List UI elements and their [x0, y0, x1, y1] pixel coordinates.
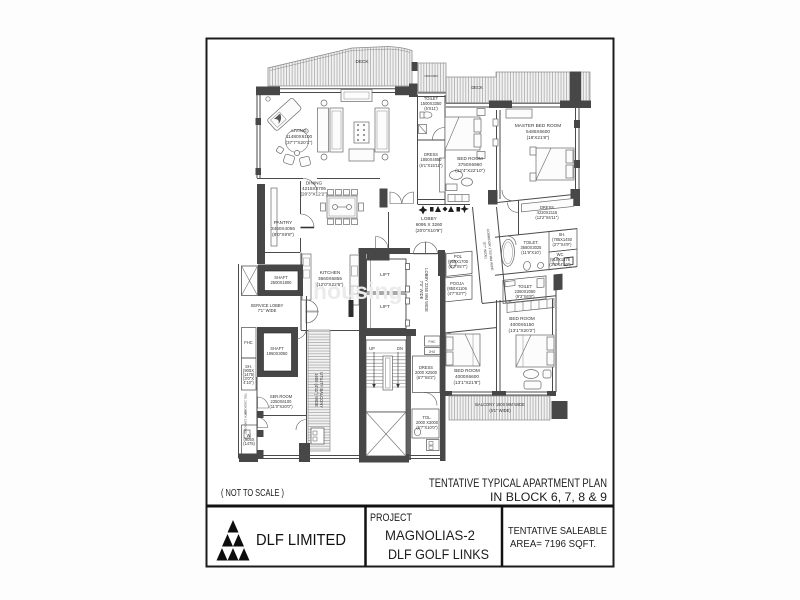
svg-text:(20'0"X10'9"): (20'0"X10'9")	[415, 228, 442, 233]
svg-text:7'0" WIDE: 7'0" WIDE	[419, 281, 424, 300]
svg-text:DLF LIMITED: DLF LIMITED	[256, 532, 346, 549]
svg-text:BED ROOM: BED ROOM	[457, 156, 483, 161]
svg-text:(3'0"X4'10"): (3'0"X4'10")	[549, 262, 571, 267]
svg-text:7'1" WIDE: 7'1" WIDE	[258, 308, 277, 313]
svg-text:11480X6100: 11480X6100	[286, 134, 313, 139]
svg-text:2500X1800: 2500X1800	[271, 280, 293, 285]
svg-text:LOBBY: LOBBY	[421, 216, 438, 221]
svg-text:4000X6600: 4000X6600	[455, 374, 479, 379]
svg-text:DN: DN	[397, 346, 403, 351]
svg-text:( NOT TO SCALE ): ( NOT TO SCALE )	[221, 487, 284, 499]
svg-text:(12'4"X22'10"): (12'4"X22'10")	[455, 168, 485, 173]
svg-text:(11'0"X20'0"): (11'0"X20'0")	[269, 404, 293, 409]
svg-text:(9'3"X6'9"): (9'3"X6'9")	[515, 294, 535, 299]
svg-text:(20'3"X12'2"): (20'3"X12'2")	[300, 192, 327, 197]
svg-text:FHC: FHC	[429, 340, 437, 344]
svg-text:BED ROOM: BED ROOM	[454, 368, 480, 373]
svg-text:FHC: FHC	[244, 340, 252, 345]
svg-text:MAGNOLIAS-2: MAGNOLIAS-2	[385, 527, 475, 543]
svg-text:4000X6150: 4000X6150	[510, 322, 534, 327]
svg-text:UP: UP	[369, 346, 375, 351]
svg-text:1500X900: 1500X900	[424, 74, 438, 78]
svg-text:(6'7"X8'2"): (6'7"X8'2")	[416, 375, 436, 380]
svg-text:DECK: DECK	[471, 85, 483, 90]
svg-text:(6'1"X15'11"): (6'1"X15'11")	[419, 163, 443, 168]
svg-text:KITCHEN: KITCHEN	[320, 270, 341, 275]
svg-text:(12'0"X22'6"): (12'0"X22'6")	[316, 282, 343, 287]
svg-text:(37'7"X20'1"): (37'7"X20'1")	[285, 140, 312, 145]
svg-text:(4'7"X5'7"): (4'7"X5'7")	[448, 264, 468, 269]
svg-text:MASTER BED ROOM: MASTER BED ROOM	[515, 123, 561, 128]
svg-text:6095 X 3260: 6095 X 3260	[416, 222, 443, 227]
svg-text:(2'7"X4'9"): (2'7"X4'9")	[552, 242, 572, 247]
svg-text:1950X3050: 1950X3050	[267, 351, 289, 356]
svg-text:LIFT: LIFT	[380, 272, 390, 277]
svg-text:DINING: DINING	[306, 181, 323, 186]
svg-text:(13'1"X21'8"): (13'1"X21'8")	[453, 380, 480, 385]
svg-text:PROJECT: PROJECT	[370, 512, 412, 524]
svg-text:PANTRY: PANTRY	[274, 220, 293, 225]
svg-text:BATH 1200X2000: BATH 1200X2000	[244, 410, 248, 433]
svg-text:BALCONY 1800 MM WIDE: BALCONY 1800 MM WIDE	[475, 402, 525, 407]
svg-text:LIVING: LIVING	[291, 128, 307, 133]
svg-text:(1475): (1475)	[243, 441, 255, 446]
svg-text:1600 (4'11") WIDE: 1600 (4'11") WIDE	[314, 373, 319, 407]
svg-text:3660X6855: 3660X6855	[318, 276, 342, 281]
svg-text:(18'X21'8"): (18'X21'8")	[527, 135, 550, 140]
svg-text:TENTATIVE SALEABLE: TENTATIVE SALEABLE	[508, 525, 607, 537]
svg-text:(5'1" WIDE): (5'1" WIDE)	[489, 408, 511, 413]
svg-text:4215X3705: 4215X3705	[302, 186, 326, 191]
svg-text:TENTATIVE TYPICAL APARTMENT PL: TENTATIVE TYPICAL APARTMENT PLAN	[429, 478, 607, 490]
svg-text:(6'7"X10'0"): (6'7"X10'0")	[416, 425, 438, 430]
svg-text:5485X6600: 5485X6600	[526, 129, 550, 134]
svg-text:(11'9"X10'): (11'9"X10')	[521, 250, 541, 255]
svg-text:AREA= 7196 SQFT.: AREA= 7196 SQFT.	[510, 538, 596, 550]
svg-text:DECK: DECK	[355, 59, 369, 64]
svg-text:(12'2"X6'11"): (12'2"X6'11")	[535, 215, 559, 220]
svg-text:(5'X11'): (5'X11')	[424, 106, 438, 111]
svg-text:2HG: 2HG	[429, 350, 436, 354]
svg-text:DLF GOLF LINKS: DLF GOLF LINKS	[388, 546, 489, 562]
svg-text:3460X4055: 3460X4055	[271, 226, 295, 231]
svg-text:(8'0"X9'8"): (8'0"X9'8")	[272, 232, 294, 237]
svg-text:IN BLOCK 6, 7, 8 & 9: IN BLOCK 6, 7, 8 & 9	[490, 492, 607, 504]
svg-text:1850X4850: 1850X4850	[421, 157, 443, 162]
svg-text:(4'7"X3'7"): (4'7"X3'7")	[447, 291, 467, 296]
svg-text:3750X6960: 3750X6960	[458, 162, 482, 167]
svg-text:4'10"): 4'10")	[243, 380, 254, 385]
svg-text:LIFT: LIFT	[380, 304, 390, 309]
svg-text:(13'1"X20'2"): (13'1"X20'2")	[508, 328, 535, 333]
svg-text:BED ROOM: BED ROOM	[509, 316, 535, 321]
